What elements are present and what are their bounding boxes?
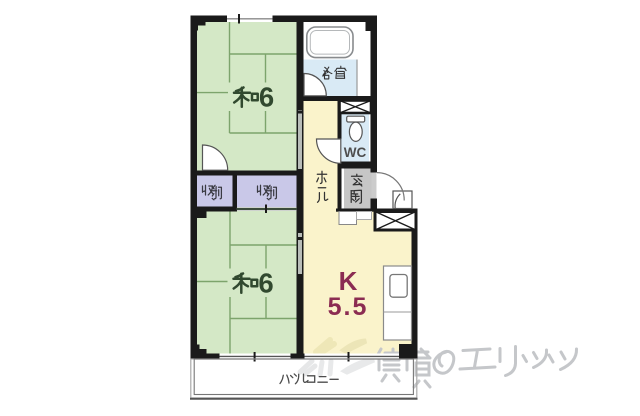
svg-text:K: K — [339, 266, 358, 296]
svg-text:WC: WC — [344, 145, 367, 160]
svg-text:5.5: 5.5 — [328, 293, 369, 321]
svg-text:6: 6 — [258, 268, 273, 299]
svg-text:6: 6 — [259, 82, 274, 113]
